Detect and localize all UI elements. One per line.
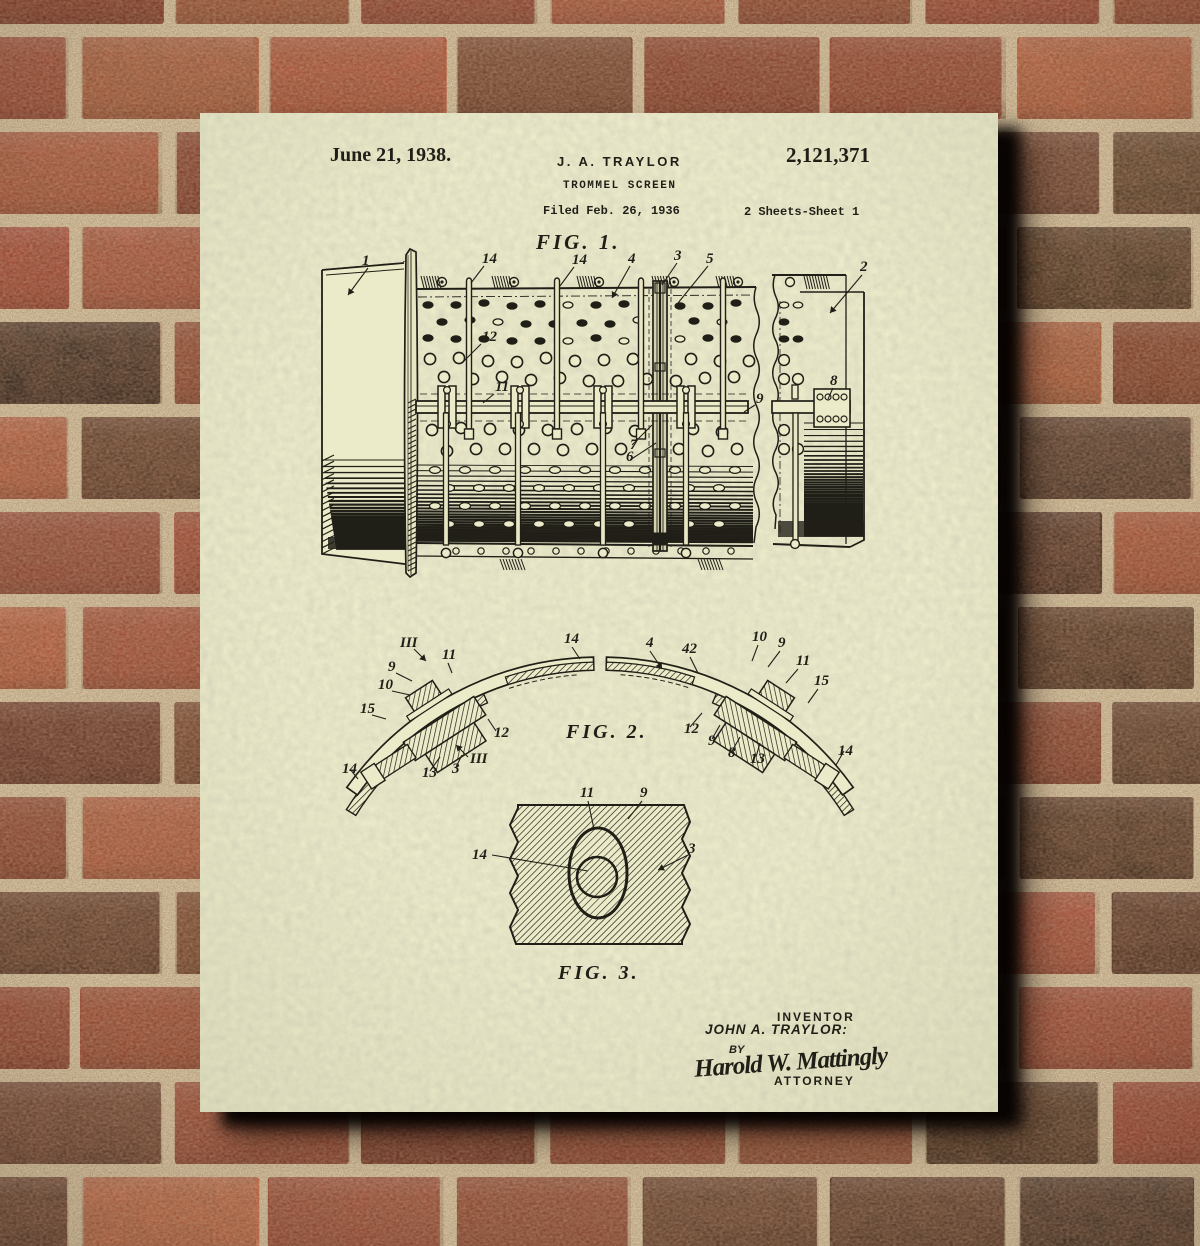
svg-text:9: 9 bbox=[640, 785, 648, 801]
svg-text:13: 13 bbox=[422, 765, 438, 781]
svg-text:42: 42 bbox=[681, 641, 698, 657]
svg-text:2: 2 bbox=[859, 259, 868, 275]
svg-text:1: 1 bbox=[362, 253, 370, 269]
svg-text:8: 8 bbox=[830, 373, 838, 389]
svg-text:8: 8 bbox=[728, 745, 736, 761]
svg-text:14: 14 bbox=[482, 251, 498, 267]
svg-text:5: 5 bbox=[706, 251, 714, 267]
svg-text:9: 9 bbox=[756, 391, 764, 407]
svg-text:10: 10 bbox=[752, 629, 768, 645]
svg-text:9: 9 bbox=[388, 659, 396, 675]
svg-text:III: III bbox=[469, 751, 489, 767]
svg-text:9: 9 bbox=[708, 733, 716, 749]
svg-text:15: 15 bbox=[814, 673, 830, 689]
svg-text:11: 11 bbox=[580, 785, 594, 801]
svg-text:4: 4 bbox=[645, 635, 654, 651]
svg-text:12: 12 bbox=[482, 329, 498, 345]
svg-text:14: 14 bbox=[472, 847, 488, 863]
svg-text:3: 3 bbox=[673, 248, 682, 264]
svg-text:3: 3 bbox=[451, 761, 460, 777]
svg-text:11: 11 bbox=[495, 379, 509, 395]
svg-text:12: 12 bbox=[684, 721, 700, 737]
svg-text:10: 10 bbox=[378, 677, 394, 693]
svg-text:11: 11 bbox=[442, 647, 456, 663]
svg-text:4: 4 bbox=[627, 251, 636, 267]
svg-text:13: 13 bbox=[750, 751, 766, 767]
svg-text:12: 12 bbox=[494, 725, 510, 741]
svg-text:6: 6 bbox=[626, 449, 634, 465]
svg-text:9: 9 bbox=[778, 635, 786, 651]
svg-text:3: 3 bbox=[687, 841, 696, 857]
svg-text:15: 15 bbox=[360, 701, 376, 717]
svg-text:14: 14 bbox=[564, 631, 580, 647]
svg-text:III: III bbox=[399, 635, 419, 651]
svg-text:11: 11 bbox=[796, 653, 810, 669]
